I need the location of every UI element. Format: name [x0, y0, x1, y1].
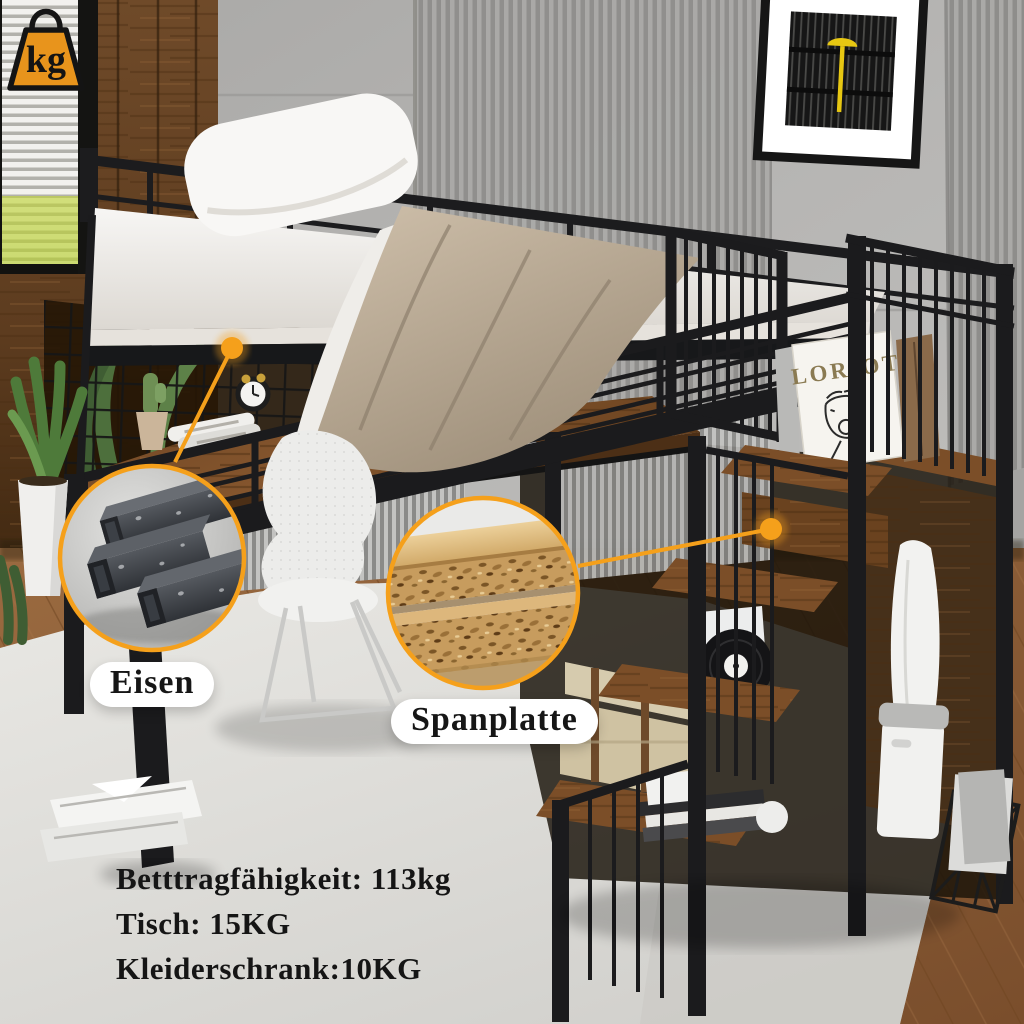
spec-line-wardrobe: Kleiderschrank:10KG [116, 946, 451, 991]
eisen-callout-line [175, 348, 232, 462]
badge-handle [32, 12, 60, 29]
spanplatte-callout-dot [760, 518, 782, 540]
spec-line-table: Tisch: 15KG [116, 901, 451, 946]
product-image: LORIOT [0, 0, 1024, 1024]
eisen-label: Eisen [90, 662, 214, 707]
spanplatte-callout-circle [363, 496, 607, 706]
spanplatte-label: Spanplatte [391, 699, 598, 744]
spanplatte-label-text: Spanplatte [411, 701, 578, 738]
badge-label: kg [26, 39, 66, 81]
spanplatte-callout-line [578, 529, 771, 566]
weight-specs: Betttragfähigkeit: 113kg Tisch: 15KG Kle… [116, 856, 451, 991]
eisen-callout-dot [221, 337, 243, 359]
eisen-callout-circle [56, 462, 282, 656]
kg-badge: kg [0, 0, 96, 102]
eisen-label-text: Eisen [110, 664, 194, 701]
spec-line-bed: Betttragfähigkeit: 113kg [116, 856, 451, 901]
